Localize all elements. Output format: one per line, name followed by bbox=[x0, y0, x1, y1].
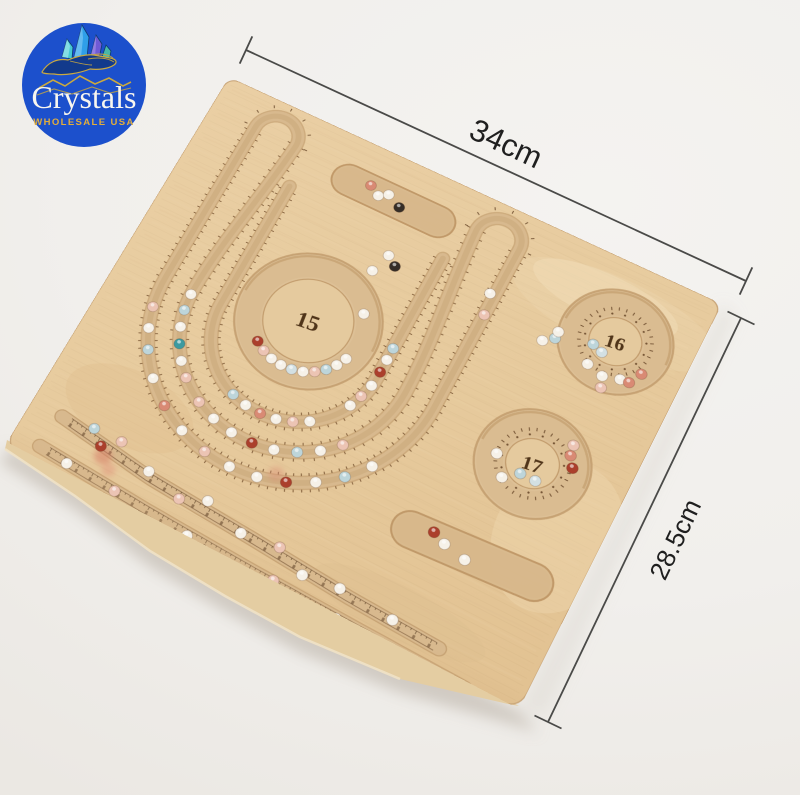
svg-text:Crystals: Crystals bbox=[32, 79, 137, 115]
svg-text:WHOLESALE USA: WHOLESALE USA bbox=[33, 117, 135, 128]
